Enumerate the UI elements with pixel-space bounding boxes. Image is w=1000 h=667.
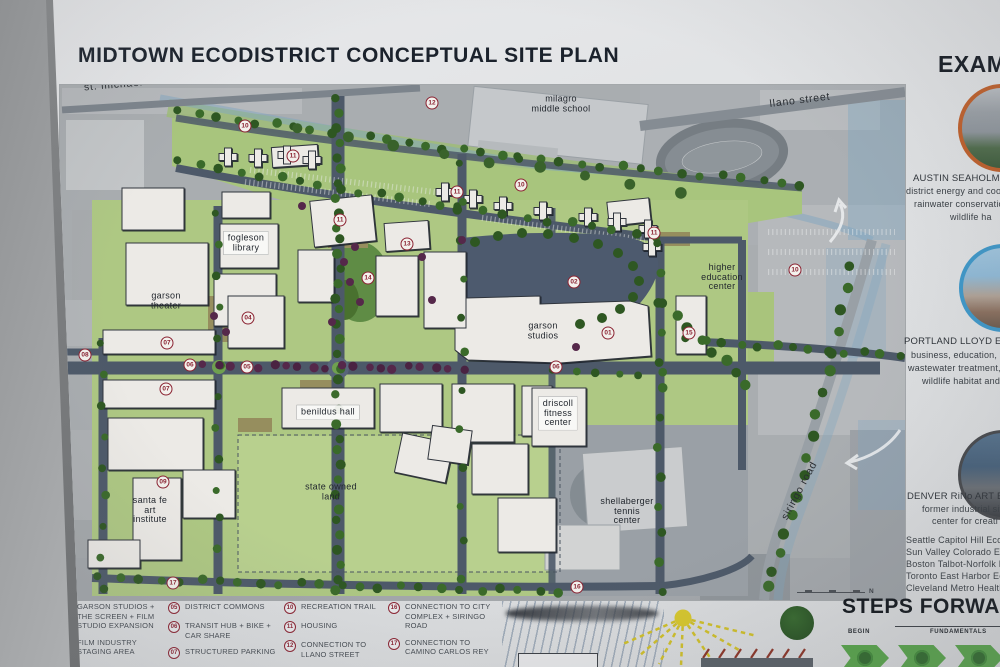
legend-number: 17	[388, 638, 400, 650]
green-circle-icon	[780, 606, 814, 640]
map-marker-10: 10	[515, 179, 528, 192]
legend-label: GARSON STUDIOS + THE SCREEN + FILM STUDI…	[77, 602, 170, 631]
site-plan-poster: MIDTOWN ECODISTRICT CONCEPTUAL SITE PLAN	[0, 0, 1000, 667]
legend-column: 16CONNECTION TO CITY COMPLEX + SIRINGO R…	[388, 602, 500, 664]
map-label: state owned land	[305, 483, 357, 502]
sidebar-text-line: former industrial site	[922, 504, 1000, 514]
begin-label: BEGIN	[848, 629, 870, 635]
legend-number: 10	[284, 602, 296, 614]
map-marker-07: 07	[160, 383, 173, 396]
sidebar-text-line: AUSTIN SEAHOLM DI	[913, 173, 1000, 184]
legend-label: TRANSIT HUB + BIKE + CAR SHARE	[185, 621, 278, 640]
sidebar-text-line: Boston Talbot-Norfolk E	[906, 559, 1000, 569]
map-label: shellaberger tennis center	[600, 497, 653, 526]
legend-item: 16CONNECTION TO CITY COMPLEX + SIRINGO R…	[388, 602, 500, 631]
legend-item: 17CONNECTION TO CAMINO CARLOS REY	[388, 638, 500, 657]
map-marker-08: 08	[79, 349, 92, 362]
legend-label: CONNECTION TO CITY COMPLEX + SIRINGO ROA…	[405, 602, 498, 631]
map-label: fogleson library	[224, 232, 268, 255]
map-marker-10: 10	[789, 264, 802, 277]
leaf-icon	[857, 650, 873, 666]
sidebar-text-line: business, education, mi	[911, 350, 1000, 360]
legend-number: 05	[168, 602, 180, 614]
step-arrow-icon	[898, 645, 946, 667]
sidebar-text-line: rainwater conservatio	[914, 199, 1000, 209]
map-marker-05: 05	[241, 361, 254, 374]
legend-item: 05DISTRICT COMMONS	[168, 602, 280, 614]
fundamentals-bracket	[895, 626, 1000, 627]
sidebar-text-line: Cleveland Metro Health	[906, 583, 1000, 593]
sidebar-text-line: DENVER RiNo ART ECO	[907, 491, 1000, 502]
sidebar-text-line: Sun Valley Colorado Ec	[906, 547, 1000, 557]
map-label: garson theater	[151, 292, 181, 311]
recycle-icon	[914, 650, 930, 666]
map-label: santa fe art institute	[133, 496, 167, 525]
sidebar-text-line: wastewater treatment,	[908, 363, 1000, 373]
fundamentals-label: FUNDAMENTALS	[930, 629, 987, 635]
example-photo-portland	[959, 244, 1000, 332]
site-plan-graphic	[60, 85, 905, 600]
legend-number: 06	[168, 621, 180, 633]
map-marker-10: 10	[239, 120, 252, 133]
legend-item: 06TRANSIT HUB + BIKE + CAR SHARE	[168, 621, 280, 640]
map-marker-06: 06	[550, 361, 563, 374]
energy-icon	[971, 650, 987, 666]
map-label: garson studios	[528, 322, 559, 341]
legend-label: CONNECTION TO LLANO STREET	[301, 640, 394, 659]
map-marker-01: 01	[602, 327, 615, 340]
map-marker-11: 11	[287, 150, 300, 163]
legend-item: 12CONNECTION TO LLANO STREET	[284, 640, 396, 659]
legend-item: 07STRUCTURED PARKING	[168, 647, 280, 659]
map-marker-13: 13	[401, 238, 414, 251]
sidebar-text-line: Toronto East Harbor Ec	[906, 571, 1000, 581]
map-marker-11: 11	[451, 186, 464, 199]
legend-column: 05DISTRICT COMMONS06TRANSIT HUB + BIKE +…	[168, 602, 280, 666]
map-marker-07: 07	[161, 337, 174, 350]
map-marker-04: 04	[242, 312, 255, 325]
steps-arrows	[841, 645, 1000, 667]
legend-number: 12	[284, 640, 296, 652]
legend-label: RECREATION TRAIL	[301, 602, 394, 614]
legend-number: 16	[388, 602, 400, 614]
steps-forward-heading: STEPS FORWARD	[842, 595, 1000, 619]
legend-column: 10RECREATION TRAIL11HOUSING12CONNECTION …	[284, 602, 396, 666]
site-plan-map: st. michael's drivellano streetsiringo r…	[60, 85, 905, 600]
sidebar-text-line: PORTLAND LLOYD ECO	[904, 336, 1000, 347]
sidebar-text-line: Seattle Capitol Hill Eco	[906, 535, 1000, 545]
north-indicator: N	[869, 588, 874, 595]
legend-label: FILM INDUSTRY STAGING AREA	[77, 638, 170, 657]
step-arrow-icon	[955, 645, 1000, 667]
map-marker-16: 16	[571, 581, 584, 594]
map-marker-02: 02	[568, 276, 581, 289]
page-title: MIDTOWN ECODISTRICT CONCEPTUAL SITE PLAN	[78, 44, 619, 68]
map-marker-09: 09	[157, 476, 170, 489]
map-marker-14: 14	[362, 272, 375, 285]
legend-label: STRUCTURED PARKING	[185, 647, 278, 659]
map-marker-06: 06	[184, 359, 197, 372]
sidebar-text-line: district energy and coo	[906, 186, 1000, 196]
step-arrow-icon	[841, 645, 889, 667]
map-marker-15: 15	[683, 327, 696, 340]
map-marker-11: 11	[334, 214, 347, 227]
legend-item: 10RECREATION TRAIL	[284, 602, 396, 614]
legend-label: CONNECTION TO CAMINO CARLOS REY	[405, 638, 498, 657]
sidebar-text-line: wildlife habitat and	[922, 376, 1000, 386]
sidebar-text-line: wildlife ha	[950, 212, 992, 222]
diagram-box	[518, 653, 598, 667]
map-label: higher education center	[701, 263, 743, 292]
legend-label: HOUSING	[301, 621, 394, 633]
map-label: driscoll fitness center	[539, 397, 577, 430]
map-marker-11: 11	[648, 227, 661, 240]
legend-number: 11	[284, 621, 296, 633]
legend-label: DISTRICT COMMONS	[185, 602, 278, 614]
map-marker-17: 17	[167, 577, 180, 590]
sidebar-text-line: center for creati	[932, 516, 998, 526]
poster-photo: MIDTOWN ECODISTRICT CONCEPTUAL SITE PLAN	[0, 0, 1000, 667]
map-marker-12: 12	[426, 97, 439, 110]
legend-item: 11HOUSING	[284, 621, 396, 633]
legend-number: 07	[168, 647, 180, 659]
examples-heading: EXAMPLES	[938, 51, 1000, 78]
map-label: milagro middle school	[532, 95, 591, 114]
example-photo-austin	[958, 84, 1000, 172]
map-label: benildus hall	[297, 405, 359, 419]
